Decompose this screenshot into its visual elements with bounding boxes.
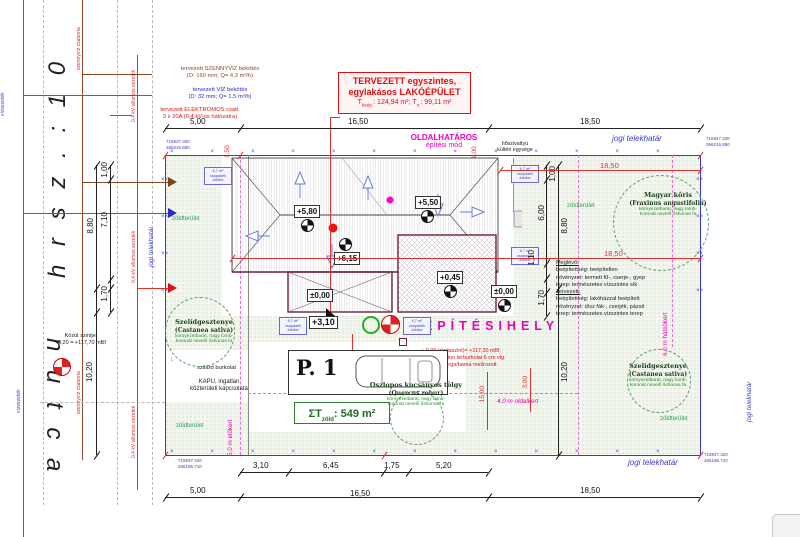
dim-right-600: 6,00 xyxy=(537,205,546,221)
leader-line xyxy=(23,95,152,96)
dim-left-710: 7,10 xyxy=(100,212,109,228)
power-line-label: 0,4 kV villamos vezeték xyxy=(131,205,137,283)
dim-right-1020: 10,20 xyxy=(560,362,569,382)
tree-desc: koronát nevelő őshonos fa xyxy=(613,212,723,217)
green-area-label: zöldterület xyxy=(567,203,595,209)
corner-coords-tl: 715937.320 266216.850 xyxy=(166,139,190,150)
green-area-label: zöldterület xyxy=(660,416,688,422)
dim-left-100: 1,00 xyxy=(100,162,109,178)
legal-boundary-label: jogi telekhatár xyxy=(612,134,662,143)
coord-northing: 266216.850 xyxy=(166,145,190,151)
tree-latin: (Castanea sativa) xyxy=(162,327,246,334)
site-plan-drawing: h r s z . : 1 0 n u t c a vízvezeték víz… xyxy=(0,0,800,537)
water-main-line xyxy=(23,0,24,537)
electric-connection-arrow xyxy=(168,283,177,293)
rainwater-box: 6,7 m²csapadékzöldbe xyxy=(204,167,232,185)
coord-easting: 715947.320 xyxy=(704,452,728,458)
dim-right-880: 8,80 xyxy=(560,218,569,234)
title-line1: TERVEZETT egyszintes, xyxy=(341,76,468,87)
dim-645: 6,45 xyxy=(323,461,339,470)
dim-red-1850-upper: 18,50 xyxy=(600,161,619,170)
rainwater-box: 6,7 m²csapadékzöldbe xyxy=(403,317,431,335)
survey-point-marker xyxy=(381,315,400,334)
tree-label-castanea-right: Szelídgesztenye (Castanea sativa) környe… xyxy=(616,363,700,388)
coord-northing: 266216.850 xyxy=(706,142,730,148)
title-areas: Tbeép.: 124,94 m²; Tn.: 99,11 m² xyxy=(341,98,468,110)
dim-line-red xyxy=(500,170,700,171)
tree-desc: koronát nevelő őshonos fa xyxy=(616,383,700,388)
tree-name: Oszlopos kocsányos tölgy xyxy=(364,382,468,390)
dim-left-1020: 10,20 xyxy=(85,362,94,382)
sewer-service-run xyxy=(82,182,168,183)
state-header-existing: Meglévő: xyxy=(556,260,645,267)
tree-latin: (Fraxinus angustifolia) xyxy=(613,200,723,207)
side-setback-label: 4,0 m oldalkert xyxy=(497,398,538,405)
vent-point xyxy=(387,197,394,204)
green-total-symbol: ΣT xyxy=(309,408,322,420)
dim-bottom-1650: 16,50 xyxy=(350,489,370,498)
dim-right-170: 1,70 xyxy=(537,290,546,306)
dim-bottom-1850: 18,50 xyxy=(580,486,600,495)
leader-line xyxy=(82,74,152,75)
dim-line xyxy=(240,472,488,473)
level-045: +0,45 xyxy=(437,271,463,284)
corner-coords-bl: 715937.320 266196.710 xyxy=(178,458,202,469)
road-level-note: Közút szintje: -0,20 = +117,70 mBf xyxy=(50,333,112,346)
planting-circle-marker xyxy=(362,316,380,334)
tree-latin: (Castanea sativa) xyxy=(616,371,700,378)
tree-crown xyxy=(613,175,709,271)
dim-1-50-red: 1,50 xyxy=(224,140,231,158)
dim-line xyxy=(165,128,700,129)
dim-red-1500: 15,00 xyxy=(479,386,486,402)
utility-box-marker xyxy=(399,338,407,346)
water-connection-line1: tervezett VÍZ bekötés xyxy=(150,87,290,94)
sewer-connection-note: tervezett SZENNYVÍZ bekötés (D: 160 mm; … xyxy=(150,66,290,80)
level-000-left: ±0,00 xyxy=(307,289,333,302)
sewer-connection-line1: tervezett SZENNYVÍZ bekötés xyxy=(150,66,290,73)
rear-setback-label: 6,0 m hátsókert xyxy=(662,292,669,356)
electric-connection-line1: tervezett ELEKTROMOS csatl. xyxy=(130,107,270,114)
water-pipe-label: vízvezeték xyxy=(16,355,22,413)
ui-corner-widget[interactable] xyxy=(772,514,800,537)
coord-easting: 715947.320 xyxy=(706,136,730,142)
water-connection-note: tervezett VÍZ bekötés (D: 32 mm; Q= 1,5 … xyxy=(150,87,290,101)
leader-line xyxy=(110,115,132,116)
dim-top-1850: 18,50 xyxy=(580,117,600,126)
tree-label-quercus: Oszlopos kocsányos tölgy (Quercus robur)… xyxy=(364,382,468,407)
tree-desc: koronát nevelő őshonos fa xyxy=(162,339,246,344)
state-line: növényzet: termett fű-, cserje-, gyep xyxy=(556,275,645,282)
site-state-note: Meglévő: beépítettség: beépítetlen növén… xyxy=(556,260,645,318)
state-line: beépítettség: lakóházzal beépített xyxy=(556,296,645,303)
dim-line xyxy=(165,497,700,498)
dim-175: 1,75 xyxy=(384,461,400,470)
heat-pump-line2: kültéri egysége xyxy=(486,147,544,153)
green-area-label: zöldterület xyxy=(172,216,200,222)
tree-latin: (Quercus robur) xyxy=(364,390,468,397)
state-line: beépítettség: beépítetlen xyxy=(556,267,645,274)
heat-pump-note: hőszivattyú kültéri egysége xyxy=(486,141,544,154)
gate-note-line1: KAPU, ingatlan xyxy=(180,379,258,386)
level-marker xyxy=(421,210,434,223)
level-000-right: ±0,00 xyxy=(491,285,517,298)
dim-top-1650: 16,50 xyxy=(348,117,368,126)
dim-left-170: 1,70 xyxy=(100,286,109,302)
rainwater-box: 6,7 m²csapadékzöldbe xyxy=(279,317,307,335)
front-setback-label: 5,0 m előkert xyxy=(227,396,234,456)
tree-name: Szelídgesztenye xyxy=(616,363,700,371)
sewer-pipe-label: szennyvíz csatorna xyxy=(76,8,82,70)
sewer-main-line xyxy=(82,0,83,460)
dashed-line xyxy=(117,0,118,505)
sewer-connection-arrow xyxy=(168,177,177,187)
dim-line xyxy=(558,165,559,455)
dim-top-5: 5,00 xyxy=(190,117,206,126)
dim-line-red xyxy=(530,368,531,412)
heat-pump-unit xyxy=(514,211,522,227)
state-line: terep: természetes vízszintes sík xyxy=(556,282,645,289)
dim-line-red xyxy=(487,372,488,430)
corner-coords-tr: 715947.320 266216.850 xyxy=(706,136,730,147)
leader-line xyxy=(330,117,340,118)
coord-northing: 266196.710 xyxy=(178,464,202,470)
dim-310: 3,10 xyxy=(253,461,269,470)
area1-value: : 124,94 m²; xyxy=(373,99,412,106)
boundary-marks: ×××××××× xyxy=(161,162,168,450)
level-310: +3,10 xyxy=(309,316,338,329)
tree-name: Magyar kőris xyxy=(613,192,723,200)
green-area-label: zöldterület xyxy=(176,423,204,429)
coord-easting: 715937.320 xyxy=(178,458,202,464)
project-title-box: TERVEZETT egyszintes, egylakásos LAKÓÉPÜ… xyxy=(338,72,471,114)
water-connection-line2: (D: 32 mm; Q= 1,5 m³/h) xyxy=(150,94,290,101)
dim-line-red xyxy=(232,258,700,259)
sewer-pipe-label: szennyvíz csatorna xyxy=(76,352,82,414)
boundary-bottom xyxy=(165,455,700,456)
area1-subscript: beép. xyxy=(362,102,373,107)
gate-arrow-icon: ↓ xyxy=(170,356,174,363)
legal-boundary-label: jogi telekhatár xyxy=(148,205,155,267)
level-triangle-marker xyxy=(326,308,335,316)
level-marker xyxy=(444,285,457,298)
title-line2: egylakásos LAKÓÉPÜLET xyxy=(341,87,468,98)
road-level-line2: -0,20 = +117,70 mBf xyxy=(50,340,112,347)
sewer-connection-line2: (D: 160 mm; Q= 4,3 m³/h) xyxy=(150,73,290,80)
legal-boundary-label: jogi telekhatár xyxy=(628,458,678,467)
dim-right-100: 1,00 xyxy=(548,166,557,182)
green-total-subscript: zöld xyxy=(322,417,334,423)
dim-left-880: 8,80 xyxy=(86,218,95,234)
coord-northing: 266196.710 xyxy=(704,458,728,464)
rainwater-box: 6,7 m²csapadékzöldbe xyxy=(511,165,539,183)
level-marker xyxy=(301,219,314,232)
green-total-value: : 549 m² xyxy=(334,408,376,420)
dim-red-300: 3,00 xyxy=(522,376,529,389)
dim-red-1850-lower: 18,50 xyxy=(604,249,623,258)
tree-label-fraxinus: Magyar kőris (Fraxinus angustifolia) kör… xyxy=(613,192,723,217)
level-580: +5,80 xyxy=(294,205,320,218)
dim-1-00-red: 1,00 xyxy=(471,141,478,159)
benchmark-marker xyxy=(53,358,71,376)
level-marker xyxy=(339,238,352,251)
level-550: +5,50 xyxy=(415,196,441,209)
water-pipe-label: vízvezeték xyxy=(0,58,6,116)
legal-boundary-label: jogi telekhatár xyxy=(746,352,753,422)
state-line: terep: természetes vízszintes terep xyxy=(556,311,645,318)
dim-520: 5,20 xyxy=(436,461,452,470)
power-line-label: 0,4 kV villamos vezeték xyxy=(131,380,137,458)
gate-note-line2: közterületi kapcsolata xyxy=(180,386,258,393)
hrsz-label: h r s z . : 1 0 xyxy=(44,8,72,278)
gate-note: KAPU, ingatlan közterületi kapcsolata xyxy=(180,379,258,393)
area2-value: : 99,11 m² xyxy=(420,99,451,106)
coord-easting: 715937.320 xyxy=(166,139,190,145)
tree-desc: koronát nevelő őshonos fa xyxy=(364,402,468,407)
tree-label-castanea-left: Szelídgesztenye (Castanea sativa) környe… xyxy=(162,319,246,344)
boundary-marks: ××××××××××××× xyxy=(170,449,698,455)
building-roof-plan xyxy=(222,150,522,320)
state-header-planned: Tervezett: xyxy=(556,289,645,296)
building-site-label: ÉPÍTÉSIHELY xyxy=(424,319,559,333)
state-line: növényzet: dísz fák-, cserjék, pázsit xyxy=(556,304,645,311)
tree-name: Szelídgesztenye xyxy=(162,319,246,327)
corner-coords-br: 715947.320 266196.710 xyxy=(704,452,728,463)
dim-bottom-5: 5,00 xyxy=(190,486,206,495)
parking-label: P. 1 xyxy=(296,355,338,380)
level-marker xyxy=(498,299,511,312)
